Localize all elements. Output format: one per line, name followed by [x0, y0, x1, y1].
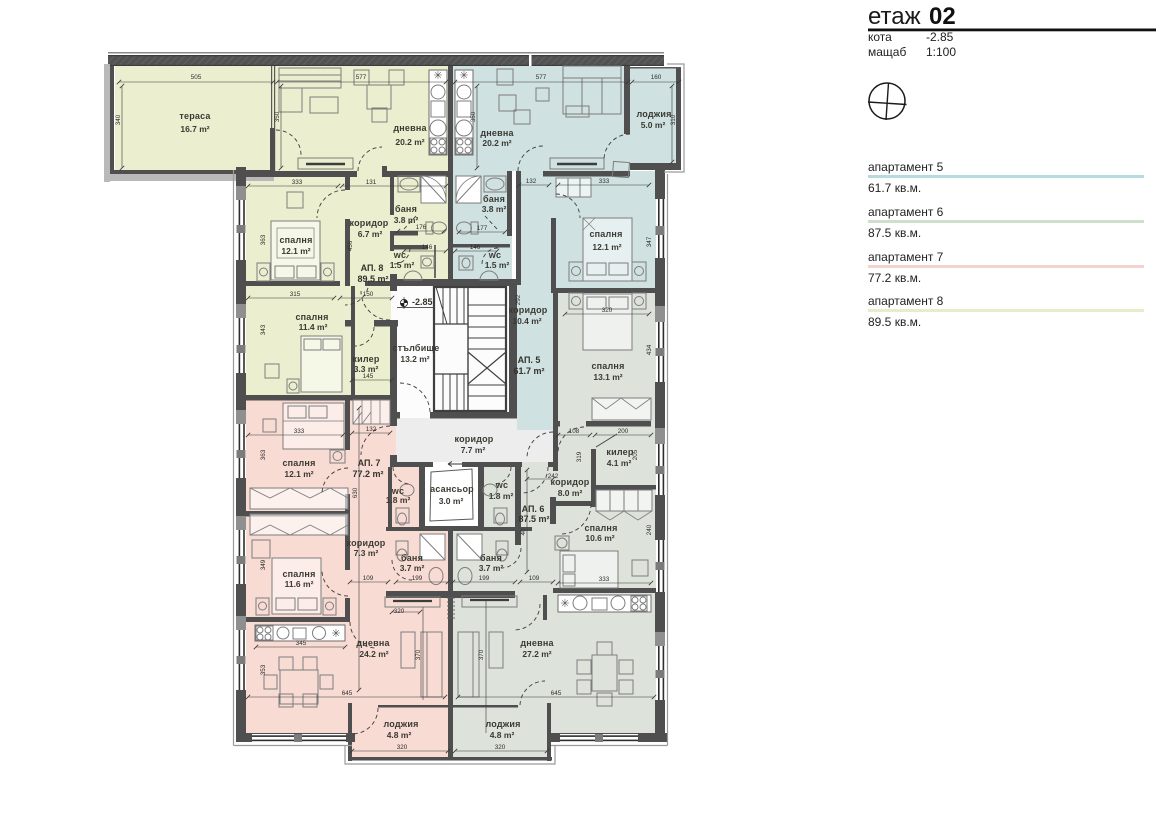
svg-text:87.5 кв.м.: 87.5 кв.м.	[868, 226, 921, 240]
svg-text:килер: килер	[606, 447, 633, 457]
svg-text:баня: баня	[483, 194, 505, 204]
svg-text:89.5 кв.м.: 89.5 кв.м.	[868, 315, 921, 329]
svg-text:✳: ✳	[331, 628, 340, 640]
svg-text:320: 320	[495, 744, 506, 751]
svg-text:577: 577	[356, 74, 367, 81]
svg-text:61.7 кв.м.: 61.7 кв.м.	[868, 181, 921, 195]
svg-text:wc: wc	[495, 480, 508, 490]
svg-text:577: 577	[536, 74, 547, 81]
svg-text:320: 320	[397, 744, 408, 751]
svg-text:132: 132	[526, 178, 537, 185]
svg-text:дневна: дневна	[356, 638, 390, 648]
svg-text:10.4 m²: 10.4 m²	[512, 316, 541, 326]
svg-text:630: 630	[352, 487, 359, 498]
svg-text:коридор: коридор	[508, 305, 547, 315]
svg-text:645: 645	[342, 690, 353, 697]
svg-text:77.2 m²: 77.2 m²	[352, 469, 383, 479]
svg-text:6.7 m²: 6.7 m²	[358, 229, 383, 239]
svg-text:370: 370	[478, 649, 485, 660]
svg-text:1.8 m²: 1.8 m²	[386, 495, 411, 505]
svg-text:✳: ✳	[560, 598, 569, 610]
svg-text:спалня: спалня	[591, 361, 624, 371]
svg-text:12.1 m²: 12.1 m²	[284, 469, 313, 479]
svg-text:108: 108	[569, 428, 580, 435]
svg-text:4.8 m²: 4.8 m²	[490, 730, 515, 740]
svg-text:132: 132	[366, 426, 377, 433]
svg-text:77.2 кв.м.: 77.2 кв.м.	[868, 271, 921, 285]
svg-text:АП. 8: АП. 8	[361, 263, 384, 273]
svg-text:5.0 m²: 5.0 m²	[641, 120, 666, 130]
svg-text:200: 200	[618, 428, 629, 435]
svg-text:16.7 m²: 16.7 m²	[180, 124, 209, 134]
svg-text:40: 40	[520, 528, 527, 536]
svg-text:310: 310	[670, 114, 677, 125]
svg-text:1.5 m²: 1.5 m²	[485, 260, 510, 270]
svg-text:353: 353	[260, 664, 267, 675]
svg-text:240: 240	[646, 524, 653, 535]
svg-text:3.7 m²: 3.7 m²	[479, 563, 504, 573]
svg-text:-2.85: -2.85	[412, 297, 433, 307]
svg-text:340: 340	[115, 114, 122, 125]
svg-text:3.8 m²: 3.8 m²	[394, 215, 419, 225]
svg-text:апартамент 7: апартамент 7	[868, 250, 944, 264]
svg-text:131: 131	[366, 179, 377, 186]
svg-text:350: 350	[274, 111, 281, 122]
svg-text:176: 176	[416, 224, 427, 231]
svg-text:434: 434	[646, 344, 653, 355]
svg-text:146: 146	[470, 244, 481, 251]
svg-text:363: 363	[260, 234, 267, 245]
svg-text:лоджия: лоджия	[485, 719, 520, 729]
svg-text:1.8 m²: 1.8 m²	[489, 491, 514, 501]
svg-text:61.7 m²: 61.7 m²	[513, 366, 544, 376]
svg-text:спалня: спалня	[279, 235, 312, 245]
svg-text:320: 320	[602, 307, 613, 314]
svg-text:килер: килер	[352, 354, 379, 364]
svg-text:109: 109	[529, 575, 540, 582]
svg-text:спалня: спалня	[295, 312, 328, 322]
svg-text:спалня: спалня	[282, 458, 315, 468]
svg-text:АП. 5: АП. 5	[518, 355, 541, 365]
svg-text:12.1 m²: 12.1 m²	[592, 242, 621, 252]
svg-text:645: 645	[551, 690, 562, 697]
svg-text:11.4 m²: 11.4 m²	[299, 322, 328, 332]
svg-text:347: 347	[646, 236, 653, 247]
svg-text:1:100: 1:100	[926, 45, 956, 59]
svg-text:146: 146	[422, 244, 433, 251]
svg-text:20.2 m²: 20.2 m²	[482, 138, 511, 148]
svg-text:333: 333	[294, 428, 305, 435]
svg-text:27.2 m²: 27.2 m²	[522, 649, 551, 659]
svg-text:коридор: коридор	[349, 218, 388, 228]
svg-text:370: 370	[415, 649, 422, 660]
svg-text:3.8 m²: 3.8 m²	[482, 204, 507, 214]
svg-text:дневна: дневна	[520, 638, 554, 648]
svg-text:4.1 m²: 4.1 m²	[607, 458, 632, 468]
svg-text:24.2 m²: 24.2 m²	[359, 649, 388, 659]
svg-text:145: 145	[363, 373, 374, 380]
svg-text:89.5 m²: 89.5 m²	[357, 274, 388, 284]
svg-text:02: 02	[929, 3, 956, 30]
svg-text:баня: баня	[480, 553, 502, 563]
svg-text:спалня: спалня	[282, 569, 315, 579]
svg-text:✳: ✳	[459, 70, 468, 82]
svg-text:апартамент 5: апартамент 5	[868, 160, 944, 174]
svg-text:343: 343	[260, 324, 267, 335]
svg-text:АП. 6: АП. 6	[522, 504, 545, 514]
svg-text:87.5 m²: 87.5 m²	[518, 514, 549, 524]
svg-text:8.0 m²: 8.0 m²	[558, 488, 583, 498]
svg-text:350: 350	[470, 111, 477, 122]
svg-text:баня: баня	[395, 204, 417, 214]
svg-text:456: 456	[347, 240, 354, 251]
svg-text:292: 292	[515, 294, 522, 305]
svg-text:177: 177	[477, 225, 488, 232]
svg-text:АП. 7: АП. 7	[358, 458, 381, 468]
svg-text:315: 315	[290, 291, 301, 298]
svg-text:апартамент 6: апартамент 6	[868, 205, 944, 219]
svg-text:505: 505	[191, 74, 202, 81]
svg-text:дневна: дневна	[480, 128, 514, 138]
svg-text:спалня: спалня	[584, 523, 617, 533]
svg-text:13.1 m²: 13.1 m²	[593, 372, 622, 382]
svg-text:205: 205	[632, 449, 639, 460]
svg-text:319: 319	[576, 451, 583, 462]
svg-text:345: 345	[296, 640, 307, 647]
svg-text:-2.85: -2.85	[926, 30, 954, 44]
svg-text:дневна: дневна	[393, 123, 427, 133]
svg-text:12.1 m²: 12.1 m²	[281, 246, 310, 256]
svg-text:20.2 m²: 20.2 m²	[395, 137, 424, 147]
svg-text:стълбище: стълбище	[393, 343, 440, 353]
svg-text:320: 320	[394, 608, 405, 615]
svg-text:199: 199	[412, 575, 423, 582]
svg-text:363: 363	[260, 449, 267, 460]
svg-text:мащаб: мащаб	[868, 45, 906, 59]
svg-text:349: 349	[260, 559, 267, 570]
svg-text:150: 150	[363, 291, 374, 298]
svg-text:3.0 m²: 3.0 m²	[439, 496, 464, 506]
svg-text:333: 333	[292, 179, 303, 186]
svg-text:баня: баня	[401, 553, 423, 563]
svg-text:333: 333	[599, 576, 610, 583]
svg-text:апартамент 8: апартамент 8	[868, 294, 944, 308]
svg-text:7.7 m²: 7.7 m²	[461, 445, 486, 455]
svg-text:спалня: спалня	[589, 229, 622, 239]
svg-text:13.2 m²: 13.2 m²	[400, 354, 429, 364]
svg-text:109: 109	[363, 575, 374, 582]
svg-text:✳: ✳	[433, 70, 442, 82]
svg-text:11.6 m²: 11.6 m²	[285, 579, 314, 589]
svg-text:1.5 m²: 1.5 m²	[390, 260, 415, 270]
svg-text:199: 199	[479, 575, 490, 582]
svg-text:333: 333	[599, 178, 610, 185]
svg-text:10.6 m²: 10.6 m²	[585, 533, 614, 543]
svg-text:коридор: коридор	[454, 434, 493, 444]
svg-text:wc: wc	[393, 250, 406, 260]
svg-text:4.8 m²: 4.8 m²	[387, 730, 412, 740]
svg-text:коридор: коридор	[346, 538, 385, 548]
svg-text:етаж: етаж	[868, 3, 921, 30]
svg-text:лоджия: лоджия	[636, 109, 671, 119]
svg-text:тераса: тераса	[179, 111, 211, 121]
svg-text:асансьор: асансьор	[430, 484, 474, 494]
svg-text:3.7 m²: 3.7 m²	[400, 563, 425, 573]
svg-text:кота: кота	[868, 30, 892, 44]
svg-text:160: 160	[651, 74, 662, 81]
svg-text:лоджия: лоджия	[383, 719, 418, 729]
svg-text:wc: wc	[488, 250, 501, 260]
svg-text:7.3 m²: 7.3 m²	[354, 548, 379, 558]
